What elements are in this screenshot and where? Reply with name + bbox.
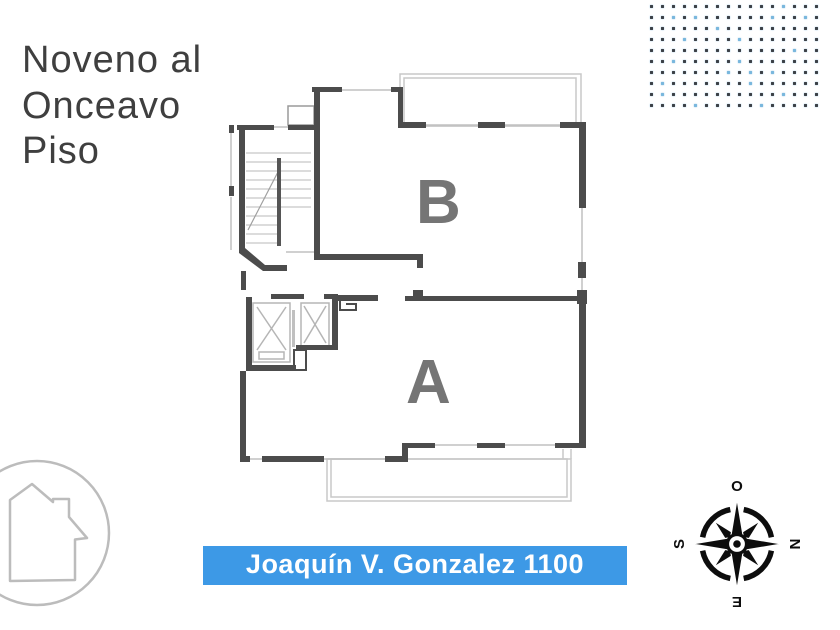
address-bar: Joaquín V. Gonzalez 1100 <box>203 546 627 585</box>
shaft-box <box>288 106 314 125</box>
elevator-shafts <box>253 303 329 362</box>
compass-rose-icon: O N E S <box>667 474 807 614</box>
compass-west-label: O <box>726 475 748 497</box>
compass-south-label: S <box>668 533 690 555</box>
address-text: Joaquín V. Gonzalez 1100 <box>246 549 584 582</box>
unit-a-label: A <box>406 352 451 414</box>
balcony-top <box>400 74 581 126</box>
balcony-bottom <box>327 449 571 501</box>
unit-b-label: B <box>416 172 461 234</box>
compass-east-label: E <box>726 591 748 613</box>
stairs <box>246 153 311 246</box>
house-icon <box>0 458 114 613</box>
door-jamb-detail <box>340 301 356 310</box>
compass-north-label: N <box>784 533 806 555</box>
